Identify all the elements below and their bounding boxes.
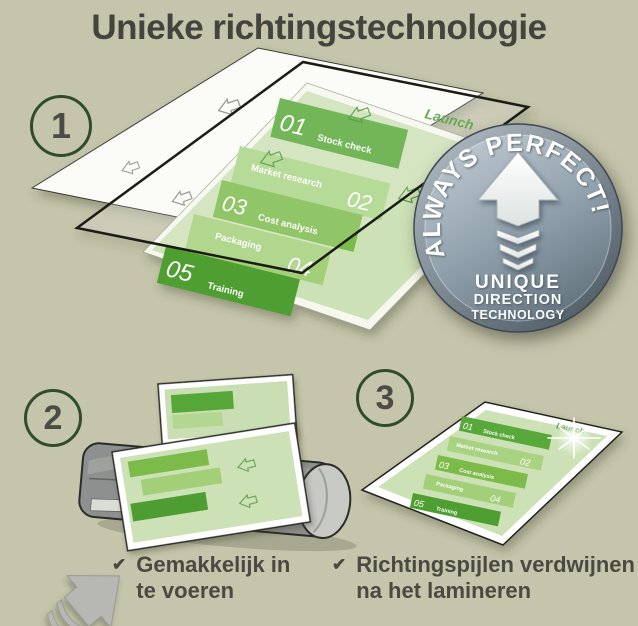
laminated-document: 01 Stock check Market research 02 03 Cos… [362, 402, 622, 545]
caption-easy-feed-line2: te voeren [136, 578, 290, 604]
infographic-canvas: Unieke richtingstechnologie [0, 0, 638, 626]
caption-easy-feed: ✔ Gemakkelijk in te voeren [112, 552, 290, 604]
step-2-number: 2 [44, 399, 63, 438]
caption-arrows-disappear: ✔ Richtingspijlen verdwijnen na het lami… [332, 552, 635, 604]
badge-line-technology: TECHNOLOGY [471, 308, 564, 322]
step-1-number: 1 [51, 105, 71, 147]
step-2-marker: 2 [24, 389, 82, 447]
phase-num: 04 [489, 493, 501, 505]
caption-easy-feed-line1: Gemakkelijk in [136, 552, 290, 578]
check-icon: ✔ [112, 552, 126, 604]
step-3-marker: 3 [356, 369, 414, 427]
step-3-number: 3 [376, 379, 395, 418]
check-icon: ✔ [332, 552, 346, 604]
phase-num: 02 [519, 456, 531, 468]
caption-arrows-disappear-line2: na het lamineren [356, 578, 635, 604]
badge-line-direction: DIRECTION [474, 292, 563, 308]
phase-num: 03 [438, 460, 450, 472]
step-1-marker: 1 [30, 95, 92, 157]
phase-num: 01 [462, 421, 474, 433]
caption-arrows-disappear-line1: Richtingspijlen verdwijnen [356, 552, 635, 578]
badge-line-unique: UNIQUE [475, 272, 561, 293]
udt-badge-graphic: ALWAYS PERFECT! UNIQUE DIRECTION TECHNOL… [412, 122, 624, 334]
udt-badge: ALWAYS PERFECT! UNIQUE DIRECTION TECHNOL… [412, 122, 624, 334]
